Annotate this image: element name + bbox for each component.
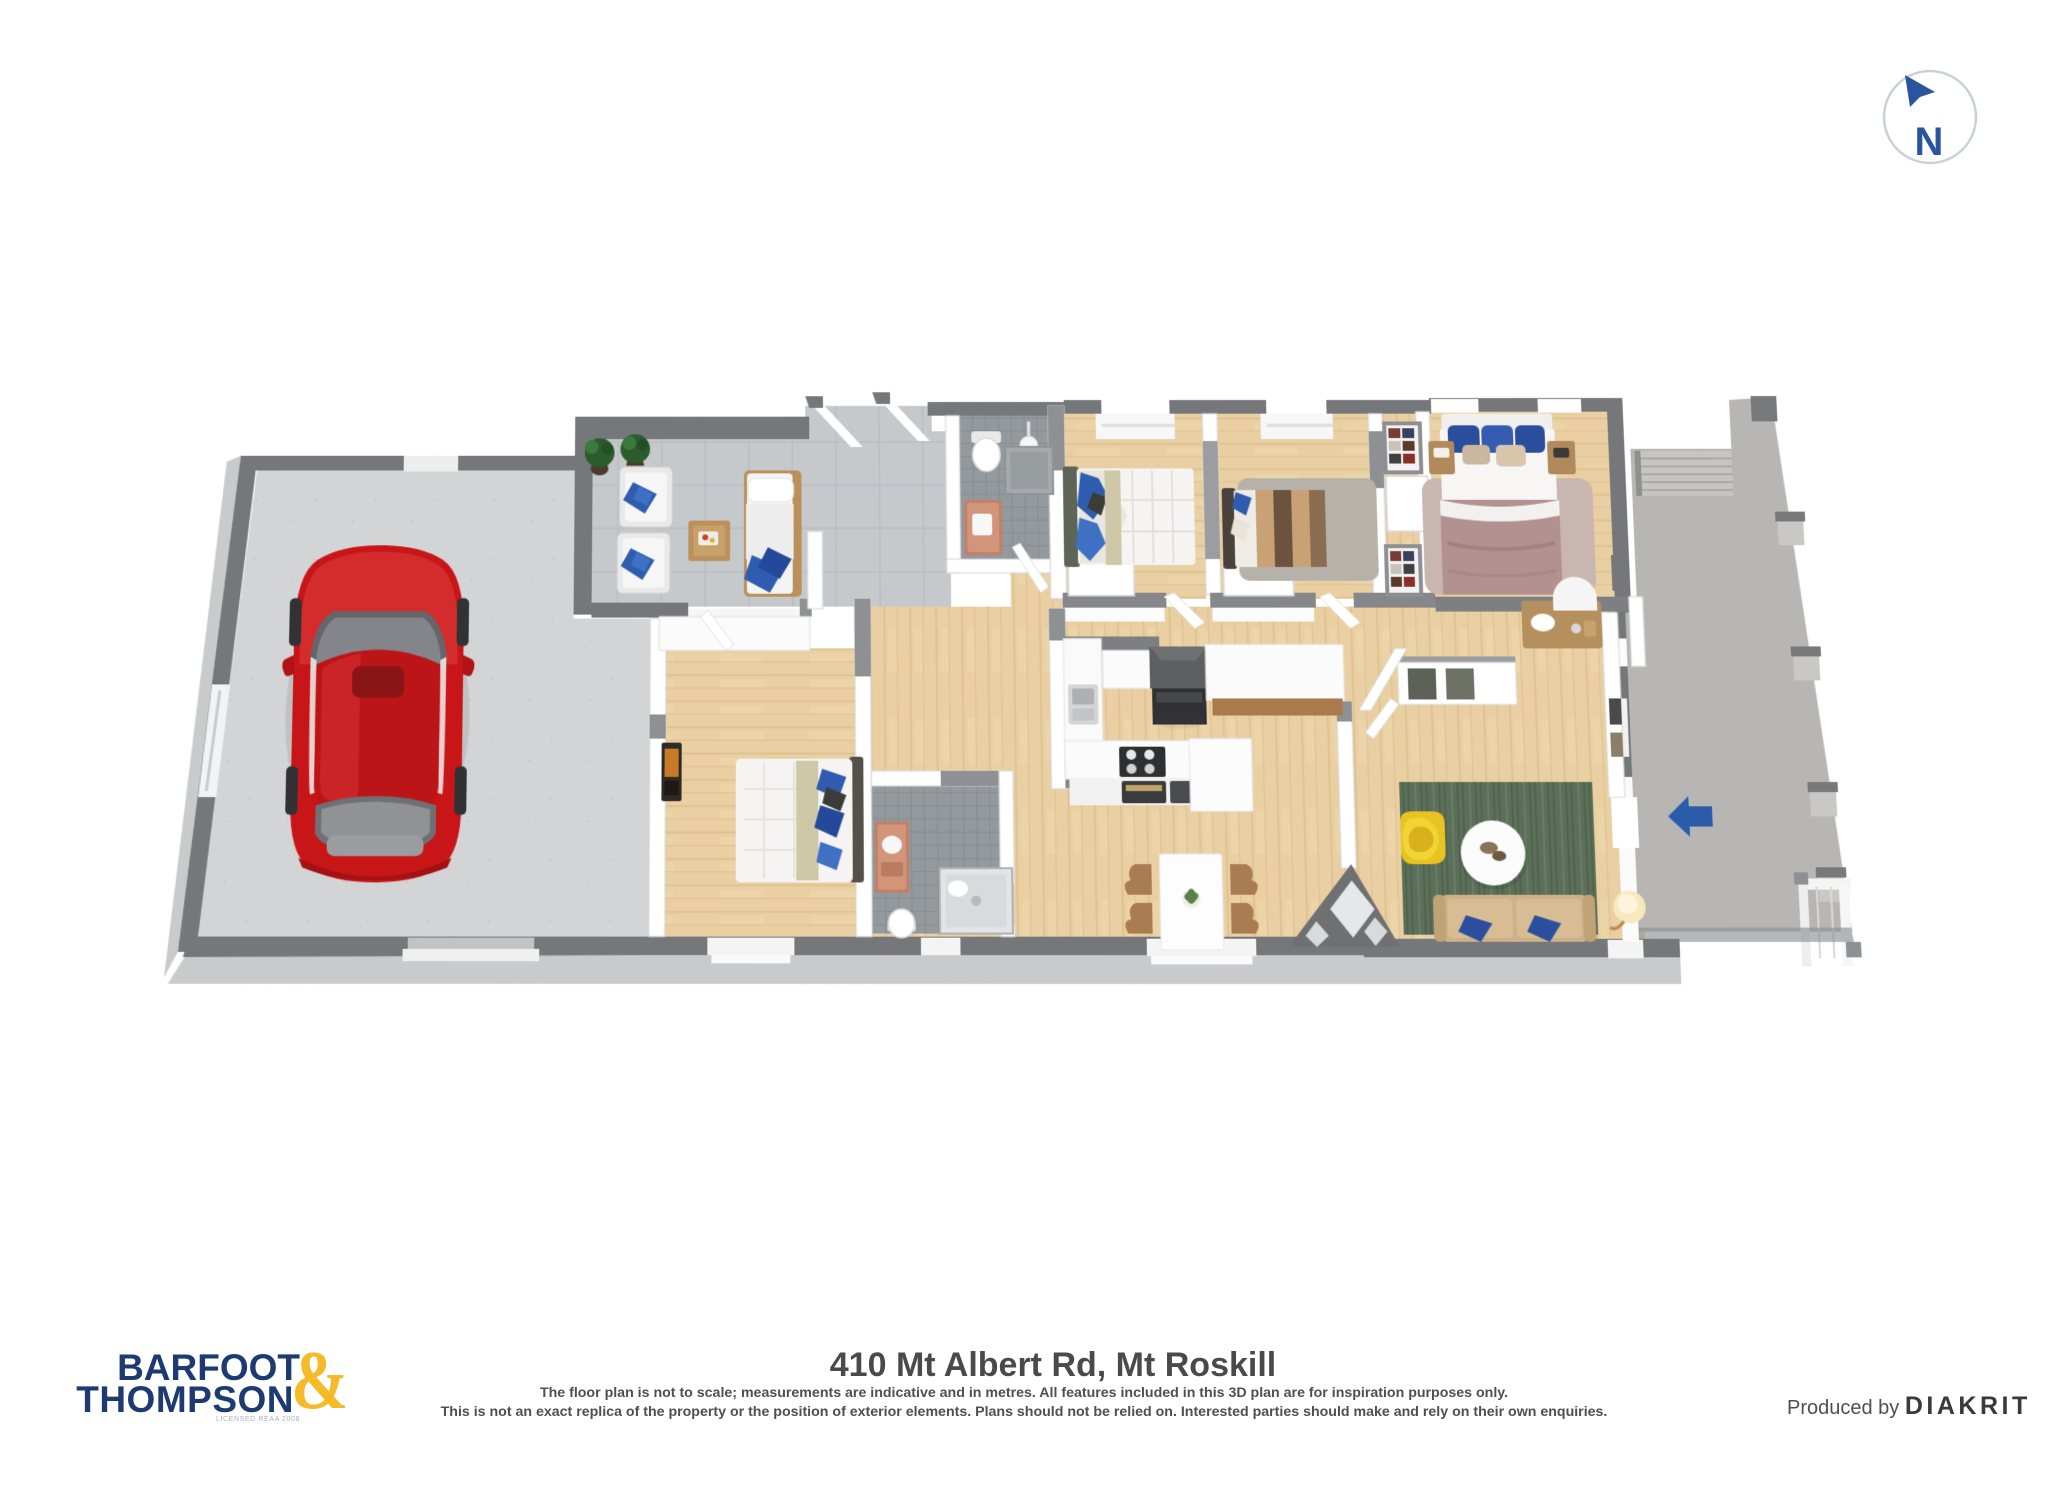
svg-text:N: N [1915, 120, 1944, 164]
